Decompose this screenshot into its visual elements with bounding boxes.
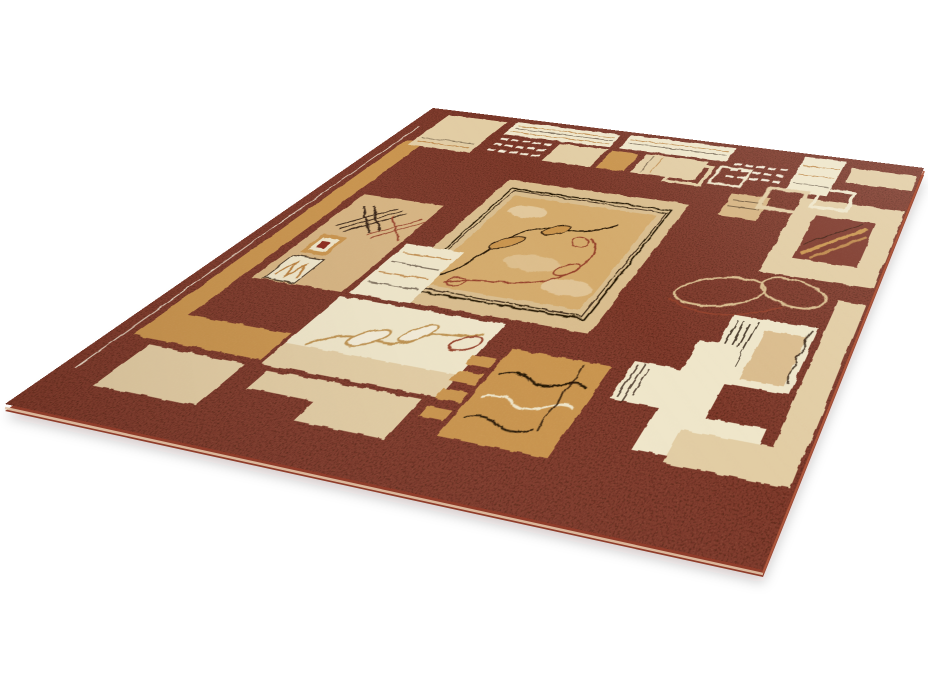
product-photo-canvas — [0, 0, 928, 686]
